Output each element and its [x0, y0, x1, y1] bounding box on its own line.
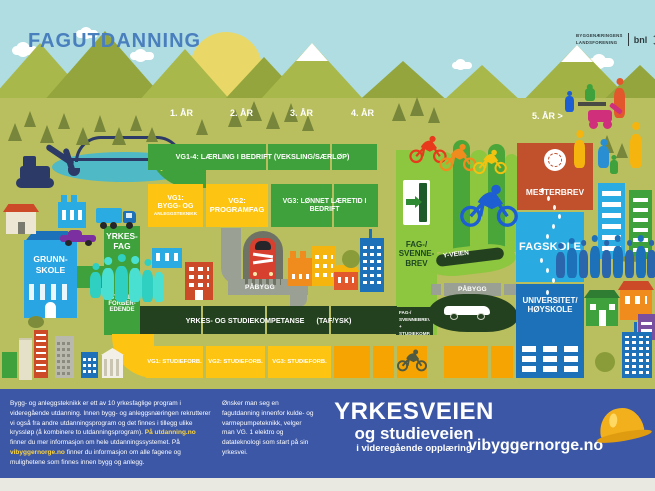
- person-icon: [602, 250, 611, 278]
- building-icon: [312, 246, 336, 286]
- fagbrev-line2: SVENNE-: [399, 249, 435, 258]
- fagbrev-line3: BREV: [405, 259, 427, 268]
- vg2-box: VG2: PROGRAMFAG: [206, 184, 268, 227]
- fagbrev-komp-line3: STUDIEKOMP.: [399, 331, 433, 338]
- footer-middle-text: Ønsker man seg en fagutdanning innenfor …: [222, 399, 314, 458]
- worker-icon: [630, 134, 642, 168]
- universitet-line2: HØYSKOLE: [516, 305, 584, 314]
- footer-site: vibyggernorge.no: [468, 437, 603, 455]
- house-icon: [152, 248, 182, 268]
- mesterbrev-label: MESTERBREV: [517, 187, 593, 197]
- studieforb-vg3-box: VG3: STUDIEFORB.: [268, 346, 331, 378]
- truck-icon: [96, 206, 138, 230]
- tree-icon: [40, 122, 54, 143]
- person-icon: [636, 246, 646, 278]
- grunnskole-building: GRUNN- SKOLE: [24, 240, 77, 318]
- studieforb-vg2-label: VG2: STUDIEFORB.: [208, 359, 262, 366]
- tree-icon: [428, 104, 440, 123]
- pabygg-right-side: [504, 284, 516, 295]
- orange-box: [444, 346, 488, 378]
- person-icon: [154, 272, 164, 302]
- tree-icon: [76, 124, 90, 145]
- tree-icon: [410, 94, 424, 116]
- ysk-main: YRKES- OG STUDIEKOMPETANSE: [186, 316, 305, 325]
- worker-icon: [610, 160, 618, 174]
- person-icon: [579, 250, 588, 278]
- bottom-strip: [0, 478, 655, 491]
- person-icon: [556, 252, 565, 278]
- house-icon: [586, 298, 618, 326]
- building-windows: [522, 346, 578, 372]
- worker-icon: [598, 146, 609, 168]
- universitet-box: UNIVERSITET/ HØYSKOLE: [516, 284, 584, 378]
- logo-divider: [628, 33, 629, 46]
- vg2-line2: PROGRAMFAG: [210, 206, 265, 215]
- worker-icon: [574, 140, 585, 168]
- building-icon: [185, 262, 213, 300]
- grunnskole-line2: SKOLE: [24, 265, 77, 275]
- train-icon: [250, 238, 276, 279]
- tree-icon: [112, 124, 126, 145]
- page-title: FAGUTDANNING: [28, 30, 201, 53]
- year-label-4: 4. ÅR: [351, 108, 374, 118]
- person-icon: [625, 250, 634, 278]
- yrkesfag-line1: YRKES-: [104, 231, 140, 241]
- excavator-icon: [4, 140, 94, 202]
- person-icon: [115, 266, 128, 302]
- worker-icon: [585, 88, 595, 101]
- year-label-3: 3. ÅR: [290, 108, 313, 118]
- building-icon: [81, 352, 98, 378]
- house-icon: [334, 272, 358, 290]
- cyclist-icon: [472, 148, 508, 175]
- person-icon: [142, 270, 153, 302]
- logo-line2: LANDSFORENING: [576, 40, 623, 46]
- person-icon: [590, 246, 600, 278]
- skyscraper-icon: [360, 238, 384, 292]
- footer-title-line1: YRKESVEIEN: [316, 398, 512, 426]
- building-icon: [2, 352, 17, 378]
- person-icon: [567, 248, 577, 278]
- year-label-2: 2. ÅR: [230, 108, 253, 118]
- bnl-logo: BYGGENÆRINGENS LANDSFORENING bnl: [576, 33, 655, 46]
- house-icon: [6, 212, 36, 234]
- person-icon: [129, 268, 141, 302]
- grunnskole-line1: GRUNN-: [24, 254, 77, 264]
- cyclist-icon: [396, 348, 428, 372]
- cyclist-icon: [458, 182, 520, 228]
- tree-icon: [196, 116, 208, 135]
- vibyggernorge-link: vibyggernorge.no: [10, 449, 65, 456]
- tree-icon: [616, 140, 628, 158]
- fagbrev-line1: FAG-/: [406, 240, 427, 249]
- round-tree-icon: [28, 316, 44, 328]
- vg1-line3: ANLEGGSTEKNIKK: [154, 211, 197, 216]
- orange-box: [373, 346, 394, 378]
- vg3-label: VG3: LØNNET LÆRETID I BEDRIFT: [271, 184, 378, 227]
- pabygg-right-label: PÅBYGG: [458, 286, 487, 293]
- building-icon: [55, 336, 74, 378]
- factory-icon: [58, 202, 86, 228]
- tree-icon: [8, 120, 22, 141]
- yrkesfag-line2: FAG: [104, 241, 140, 251]
- tree-icon: [94, 112, 106, 132]
- vg1-line1: VG1:: [167, 195, 183, 203]
- grunnskole-windows: [29, 284, 72, 300]
- grunnskole-door: [45, 302, 56, 318]
- round-tree-icon: [595, 352, 615, 372]
- ysk-label: YRKES- OG STUDIEKOMPETANSE (TAF/YSK): [140, 306, 397, 334]
- loader-icon: [586, 106, 622, 130]
- pabygg-right-side: [431, 284, 441, 295]
- tree-icon: [266, 108, 280, 129]
- studieforb-vg2-box: VG2: STUDIEFORB.: [206, 346, 265, 378]
- infographic-poster: FAGUTDANNING BYGGENÆRINGENS LANDSFORENIN…: [0, 0, 655, 491]
- ysk-suffix: (TAF/YSK): [316, 316, 351, 325]
- person-icon: [613, 246, 623, 278]
- footer-left-text: Bygg- og anleggsteknikk er ett av 10 yrk…: [10, 399, 212, 467]
- person-icon: [102, 268, 114, 300]
- orange-box: [491, 346, 513, 378]
- studieforb-vg3-label: VG3: STUDIEFORB.: [272, 359, 326, 366]
- year-label-5: 5. ÅR >: [532, 111, 563, 121]
- pabygg-left-label: PÅBYGG: [245, 284, 275, 291]
- vg1-box: VG1: BYGG- OG ANLEGGSTEKNIKK: [148, 184, 203, 227]
- road-down: [290, 283, 307, 307]
- person-icon: [647, 250, 655, 278]
- tree-icon: [146, 124, 158, 142]
- building-icon: [34, 330, 48, 378]
- studieforb-vg1-label: VG1: STUDIEFORB.: [147, 359, 201, 366]
- tree-icon: [58, 110, 70, 129]
- snow-cap: [296, 40, 328, 61]
- tree-icon: [392, 100, 406, 121]
- logo-line1: BYGGENÆRINGENS: [576, 33, 623, 39]
- round-tree-icon: [342, 250, 360, 268]
- studieforb-vg1-box: VG1: STUDIEFORB.: [146, 346, 203, 378]
- door-icon: [403, 180, 430, 225]
- building-icon: [19, 338, 32, 380]
- footer-p2: finner du mer informasjon om hele utdann…: [10, 439, 180, 446]
- orange-box: [334, 346, 370, 378]
- worker-icon: [565, 96, 574, 112]
- logo-brand: bnl: [634, 35, 648, 45]
- bank-building-icon: [102, 355, 123, 378]
- vg1-line2: BYGG- OG: [158, 203, 194, 211]
- vintage-car-icon: [60, 230, 96, 246]
- convertible-car-icon: [444, 302, 490, 320]
- tree-icon: [130, 112, 142, 131]
- studieforberedende-line3: EDENDE: [104, 307, 140, 313]
- road-vertical: [221, 228, 241, 284]
- skyscraper-icon: [622, 332, 652, 378]
- vg14-label: VG1-4: LÆRLING I BEDRIFT (VEKSLING/SÆRLØ…: [148, 144, 377, 170]
- year-label-1: 1. ÅR: [170, 108, 193, 118]
- utdanning-link: På utdanning.no: [145, 429, 196, 436]
- person-icon: [90, 272, 101, 298]
- universitet-line1: UNIVERSITET/: [516, 296, 584, 305]
- seal-inner: [548, 153, 562, 167]
- factory-icon: [288, 258, 314, 286]
- tree-icon: [24, 108, 36, 127]
